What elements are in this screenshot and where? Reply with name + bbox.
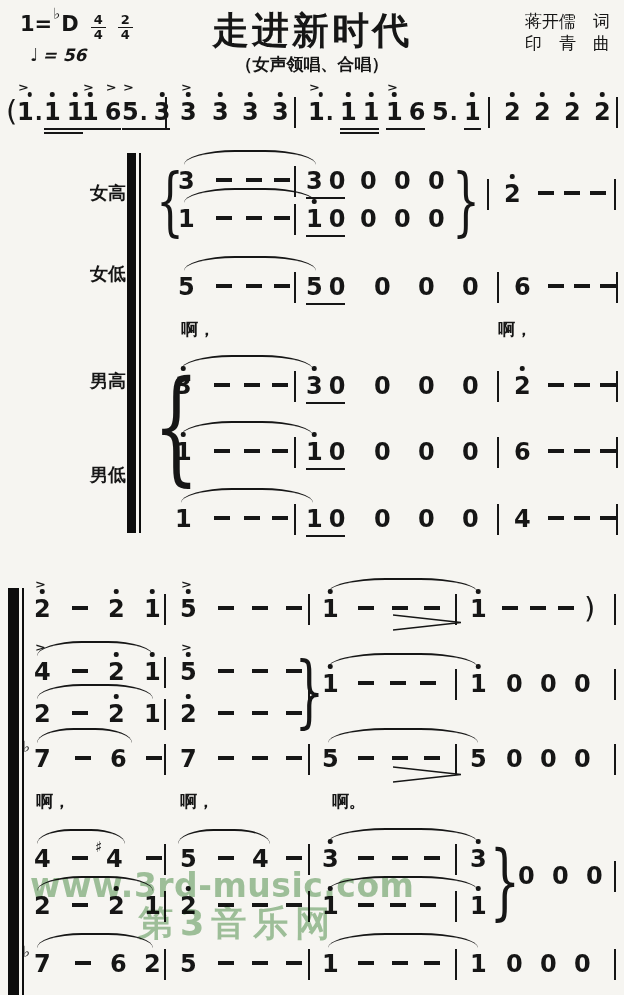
note-dash xyxy=(218,606,234,610)
barline xyxy=(164,744,166,775)
note-digit: 6 xyxy=(110,951,127,977)
note: 1 xyxy=(175,505,192,533)
music-line-bass: 1100004 xyxy=(0,505,624,539)
octave-dot xyxy=(600,92,605,97)
note-dash xyxy=(218,961,234,965)
note-digit: 2 xyxy=(514,373,531,399)
note-digit: 0 xyxy=(329,373,346,399)
note-dash xyxy=(252,606,268,610)
note: 3 xyxy=(212,98,229,126)
note: 2 xyxy=(504,98,521,126)
music-line-coda-line3: 7♭6755000 xyxy=(0,745,624,779)
note-digit: 1 xyxy=(306,439,323,465)
barline xyxy=(294,437,296,468)
note: 3 xyxy=(242,98,259,126)
barline xyxy=(616,272,618,303)
note: 7♭ xyxy=(34,950,51,978)
rest-note: 0 xyxy=(574,745,591,773)
rest-note: 0 xyxy=(462,372,479,400)
lyric-syllable: 啊。 xyxy=(332,790,366,813)
paren: ) xyxy=(584,591,595,625)
note-digit: 5 xyxy=(306,274,323,300)
note-dash xyxy=(218,756,234,760)
note-digit: 0 xyxy=(329,506,346,532)
note: 1 xyxy=(322,595,339,623)
barline xyxy=(165,97,167,128)
note-dash xyxy=(286,756,302,760)
note-dash xyxy=(274,284,290,288)
note-dash xyxy=(424,606,440,610)
note-dash xyxy=(246,216,262,220)
note-digit: 1 xyxy=(470,893,487,919)
note: 1>6 xyxy=(386,98,425,126)
note: 6 xyxy=(110,950,127,978)
note: 2> xyxy=(34,595,51,623)
note: 2 xyxy=(144,950,161,978)
note-digit: 6 xyxy=(514,439,531,465)
note: 5. xyxy=(432,98,458,126)
note-digit: 1 xyxy=(144,596,161,622)
note-dash xyxy=(392,961,408,965)
note-digit: 3> xyxy=(180,99,197,125)
part-label-女低: 女低 xyxy=(90,262,126,286)
note-digit: 1 xyxy=(67,99,84,125)
note-digit: 1 xyxy=(322,596,339,622)
note: 2 xyxy=(564,98,581,126)
note-digit: 1 xyxy=(322,951,339,977)
decrescendo-hairpin xyxy=(393,614,461,635)
beam-underline xyxy=(44,132,83,134)
octave-dot xyxy=(510,174,515,179)
rest-note: 0 xyxy=(574,670,591,698)
note-dash xyxy=(252,711,268,715)
barline xyxy=(616,437,618,468)
note-digit: 0 xyxy=(540,951,557,977)
note-digit: 2 xyxy=(144,951,161,977)
octave-dot xyxy=(510,92,515,97)
tie-arc xyxy=(37,684,153,699)
note: 2 xyxy=(108,595,125,623)
note-digit: 0 xyxy=(418,373,435,399)
note-dash xyxy=(272,516,288,520)
note-dash xyxy=(548,516,564,520)
rest-note: 0 xyxy=(418,372,435,400)
rest-note: 0 xyxy=(506,950,523,978)
note-dash xyxy=(390,681,406,685)
note-dash xyxy=(600,284,616,288)
beam-underline xyxy=(44,128,83,130)
barline xyxy=(455,891,457,922)
note-dash xyxy=(574,449,590,453)
part-label-男高: 男高 xyxy=(90,369,126,393)
note-digit: 1 xyxy=(340,99,357,125)
rest-note: 0 xyxy=(540,670,557,698)
barline xyxy=(308,594,310,625)
tie-arc xyxy=(328,653,478,668)
note-digit: 2 xyxy=(108,596,125,622)
note: 1>. xyxy=(17,98,43,126)
rest-note: 0 xyxy=(540,745,557,773)
note-dash xyxy=(424,856,440,860)
flat-sign-icon: ♭ xyxy=(23,944,30,961)
barline xyxy=(614,949,616,980)
note: 1>6> xyxy=(82,98,121,126)
octave-dot xyxy=(248,92,253,97)
octave-dot xyxy=(520,366,525,371)
note-dash xyxy=(358,856,374,860)
note-dash xyxy=(75,961,91,965)
rest-note: 0 xyxy=(374,372,391,400)
note-digit: 0 xyxy=(586,863,603,889)
note-dash xyxy=(252,961,268,965)
part-label-女高: 女高 xyxy=(90,181,126,205)
accent-mark: > xyxy=(181,642,192,653)
tie-arc xyxy=(181,355,313,370)
beam-underline xyxy=(306,468,345,470)
rest-note: 0 xyxy=(374,505,391,533)
note-dash xyxy=(75,756,91,760)
watermark-site-name: 第3音乐网 xyxy=(138,900,337,947)
beam-underline xyxy=(306,535,345,537)
note-dash xyxy=(244,383,260,387)
note-dash xyxy=(424,961,440,965)
note-digit: 3 xyxy=(306,373,323,399)
note-digit: 6 xyxy=(514,274,531,300)
note-digit: 0 xyxy=(574,671,591,697)
tie-arc xyxy=(178,829,270,844)
rest-note: 0 xyxy=(552,862,569,890)
note-digit: 0 xyxy=(329,439,346,465)
accent-mark: > xyxy=(181,579,192,590)
octave-dot xyxy=(540,92,545,97)
system-barline xyxy=(8,588,19,995)
rest-note: 0 xyxy=(374,273,391,301)
octave-dot xyxy=(570,92,575,97)
rest-note: 0 xyxy=(540,950,557,978)
barline xyxy=(164,699,166,730)
note-dash xyxy=(218,711,234,715)
note: 3 xyxy=(272,98,289,126)
accent-mark: > xyxy=(181,82,192,93)
octave-dot xyxy=(73,92,78,97)
note: 5 xyxy=(470,745,487,773)
system-barline xyxy=(139,153,141,533)
note-digit: 2 xyxy=(34,701,51,727)
note-dash xyxy=(358,756,374,760)
decrescendo-hairpin xyxy=(393,766,461,787)
music-line-intro-phrase: (1>.111>6>5>.33>3331>.111>65.12222 xyxy=(0,98,624,132)
note-dash xyxy=(286,606,302,610)
note-dash xyxy=(574,516,590,520)
note: 5 xyxy=(322,745,339,773)
barline xyxy=(497,437,499,468)
note-digit: 0 xyxy=(506,746,523,772)
note-digit: 2 xyxy=(534,99,551,125)
note-digit: 0 xyxy=(552,863,569,889)
note-digit: 1> xyxy=(82,99,99,125)
barline xyxy=(308,949,310,980)
accent-mark: > xyxy=(123,82,134,93)
note-dash xyxy=(392,606,408,610)
barline xyxy=(455,949,457,980)
octave-dot xyxy=(278,92,283,97)
barline xyxy=(308,744,310,775)
note-dash xyxy=(420,903,436,907)
note-dash xyxy=(214,383,230,387)
note-dash xyxy=(244,516,260,520)
barline xyxy=(294,272,296,303)
system-barline xyxy=(127,153,136,533)
octave-dot xyxy=(186,694,191,699)
note: 50 xyxy=(306,273,345,301)
octave-dot xyxy=(150,589,155,594)
barline xyxy=(616,97,618,128)
note-digit: 0 xyxy=(374,439,391,465)
barline xyxy=(616,504,618,535)
tie-arc xyxy=(184,256,316,271)
accent-mark: > xyxy=(387,82,398,93)
note-dash xyxy=(216,216,232,220)
note-dash xyxy=(548,284,564,288)
barline xyxy=(614,861,616,892)
tie-arc xyxy=(37,829,125,844)
note-digit: 0 xyxy=(518,863,535,889)
lyric-syllable: 啊， xyxy=(498,318,532,341)
lyric-syllable: 啊， xyxy=(180,790,214,813)
note-digit: 2 xyxy=(180,701,197,727)
beam-underline xyxy=(386,128,425,130)
flat-sign-icon: ♭ xyxy=(23,739,30,756)
note-digit: 2 xyxy=(504,99,521,125)
barline xyxy=(488,97,490,128)
note: 1 xyxy=(144,595,161,623)
note-dash xyxy=(72,711,88,715)
note: 10 xyxy=(306,438,345,466)
note-dash xyxy=(548,449,564,453)
note: 7♭ xyxy=(34,745,51,773)
note-dash xyxy=(538,191,554,195)
augmentation-dot: . xyxy=(326,101,334,125)
note-digit: 1 xyxy=(144,701,161,727)
brace-close: } xyxy=(490,836,521,928)
note-dash xyxy=(424,756,440,760)
note-digit: 1 xyxy=(470,951,487,977)
note-digit: 1 xyxy=(175,506,192,532)
rest-note: 0 xyxy=(462,505,479,533)
note-dash xyxy=(218,856,234,860)
beam-underline xyxy=(306,402,345,404)
barline xyxy=(164,594,166,625)
note-dash xyxy=(146,756,162,760)
note-digit: 0 xyxy=(540,746,557,772)
paren: ( xyxy=(6,94,17,128)
octave-dot xyxy=(160,92,165,97)
note-digit: 1 xyxy=(44,99,61,125)
note-dash xyxy=(246,284,262,288)
note-dash xyxy=(590,191,606,195)
note-digit: 1>. xyxy=(308,99,334,125)
note: 2 xyxy=(180,700,197,728)
note-digit: 0 xyxy=(574,746,591,772)
brace-open: { xyxy=(156,160,184,245)
octave-dot xyxy=(470,92,475,97)
score-canvas: (1>.111>6>5>.33>3331>.111>65.12222330000… xyxy=(0,0,624,995)
note: 2 xyxy=(514,372,531,400)
note-dash xyxy=(358,961,374,965)
barline xyxy=(616,371,618,402)
tie-arc xyxy=(37,728,132,743)
note: 1 xyxy=(470,595,487,623)
barline xyxy=(614,594,616,625)
accent-mark: > xyxy=(83,82,94,93)
barline xyxy=(497,504,499,535)
note: 1 xyxy=(464,98,481,126)
note-dash xyxy=(272,383,288,387)
note: 2 xyxy=(108,700,125,728)
note: 11 xyxy=(44,98,83,126)
note-digit: 2 xyxy=(504,181,521,207)
note-dash xyxy=(558,606,574,610)
rest-note: 0 xyxy=(418,505,435,533)
note-dash xyxy=(502,606,518,610)
rest-note: 0 xyxy=(574,950,591,978)
note-digit: 1 xyxy=(470,596,487,622)
beam-underline xyxy=(82,128,121,130)
barline xyxy=(294,371,296,402)
accent-mark: > xyxy=(309,82,320,93)
note-dash xyxy=(548,383,564,387)
note-digit: 5. xyxy=(432,99,458,125)
note-digit: 6> xyxy=(105,99,122,125)
note: 6 xyxy=(514,273,531,301)
note-digit: 0 xyxy=(462,439,479,465)
note: 3> xyxy=(180,98,197,126)
note: 11 xyxy=(340,98,379,126)
note: 2 xyxy=(504,180,521,208)
note-dash xyxy=(574,284,590,288)
note-dash xyxy=(286,961,302,965)
brace-close: } xyxy=(294,646,324,736)
note: 2 xyxy=(534,98,551,126)
note-dash xyxy=(574,383,590,387)
note-dash xyxy=(392,756,408,760)
note-dash xyxy=(600,449,616,453)
note-digit: 1>. xyxy=(17,99,43,125)
tie-arc xyxy=(328,828,478,843)
note-digit: 6 xyxy=(409,99,426,125)
note: 7 xyxy=(180,745,197,773)
barline xyxy=(455,669,457,700)
note-digit: 4 xyxy=(514,506,531,532)
note: 5> xyxy=(180,595,197,623)
note-dash xyxy=(564,191,580,195)
accent-mark: > xyxy=(106,82,117,93)
note-dash xyxy=(286,856,302,860)
note: 5>.3 xyxy=(122,98,170,126)
note-digit: 0 xyxy=(462,373,479,399)
note-digit: 0 xyxy=(462,506,479,532)
barline xyxy=(294,97,296,128)
note-digit: 2 xyxy=(564,99,581,125)
part-label-男低: 男低 xyxy=(90,463,126,487)
note-digit: 0 xyxy=(540,671,557,697)
note-digit: 7 xyxy=(180,746,197,772)
system-barline xyxy=(22,588,24,995)
note: 6 xyxy=(514,438,531,466)
tie-arc xyxy=(181,421,313,436)
beam-underline xyxy=(340,128,379,130)
note-digit: ( xyxy=(6,96,17,128)
note-dash xyxy=(72,606,88,610)
rest-note: 0 xyxy=(518,862,535,890)
note-digit: 2> xyxy=(34,596,51,622)
augmentation-dot: . xyxy=(450,101,458,125)
note: 5 xyxy=(178,273,195,301)
augmentation-dot: . xyxy=(140,101,148,125)
note-digit: 0 xyxy=(506,671,523,697)
note-dash xyxy=(358,681,374,685)
rest-note: 0 xyxy=(462,438,479,466)
note-dash xyxy=(600,516,616,520)
barline xyxy=(497,272,499,303)
note-digit: 1 xyxy=(470,671,487,697)
accent-mark: > xyxy=(35,579,46,590)
note-dash xyxy=(252,756,268,760)
note-digit: 0 xyxy=(418,506,435,532)
beam-underline xyxy=(122,128,170,130)
note-digit: 1 xyxy=(306,506,323,532)
note-dash xyxy=(244,449,260,453)
note: 5 xyxy=(180,950,197,978)
note: 1 xyxy=(470,950,487,978)
lyric-syllable: 啊， xyxy=(36,790,70,813)
note-digit: 5>. xyxy=(122,99,148,125)
octave-dot xyxy=(218,92,223,97)
note: 6 xyxy=(110,745,127,773)
note: 1>. xyxy=(308,98,334,126)
note-digit: 5 xyxy=(178,274,195,300)
note-digit: 0 xyxy=(418,439,435,465)
rest-note: 0 xyxy=(462,273,479,301)
brace-close: } xyxy=(452,160,480,245)
note-dash xyxy=(214,516,230,520)
note-dash xyxy=(530,606,546,610)
octave-dot xyxy=(114,589,119,594)
beam-underline xyxy=(340,132,379,134)
note: 4 xyxy=(514,505,531,533)
note-digit: 5 xyxy=(470,746,487,772)
note-digit: 1 xyxy=(363,99,380,125)
note: 10 xyxy=(306,505,345,533)
lyric-syllable: 啊， xyxy=(181,318,215,341)
barline xyxy=(614,669,616,700)
note-dash xyxy=(600,383,616,387)
tie-arc xyxy=(184,188,316,203)
note-digit: 0 xyxy=(506,951,523,977)
note: 1 xyxy=(322,950,339,978)
note-digit: 5> xyxy=(180,596,197,622)
note: 1 xyxy=(470,670,487,698)
barline xyxy=(164,949,166,980)
music-line-coda-line5: 7♭62511000 xyxy=(0,950,624,984)
barline xyxy=(487,179,489,210)
note-digit: 2 xyxy=(594,99,611,125)
note-digit: 1 xyxy=(322,671,339,697)
octave-dot xyxy=(369,92,374,97)
note-dash xyxy=(274,216,290,220)
note: 1 xyxy=(470,892,487,920)
rest-note: 0 xyxy=(418,438,435,466)
